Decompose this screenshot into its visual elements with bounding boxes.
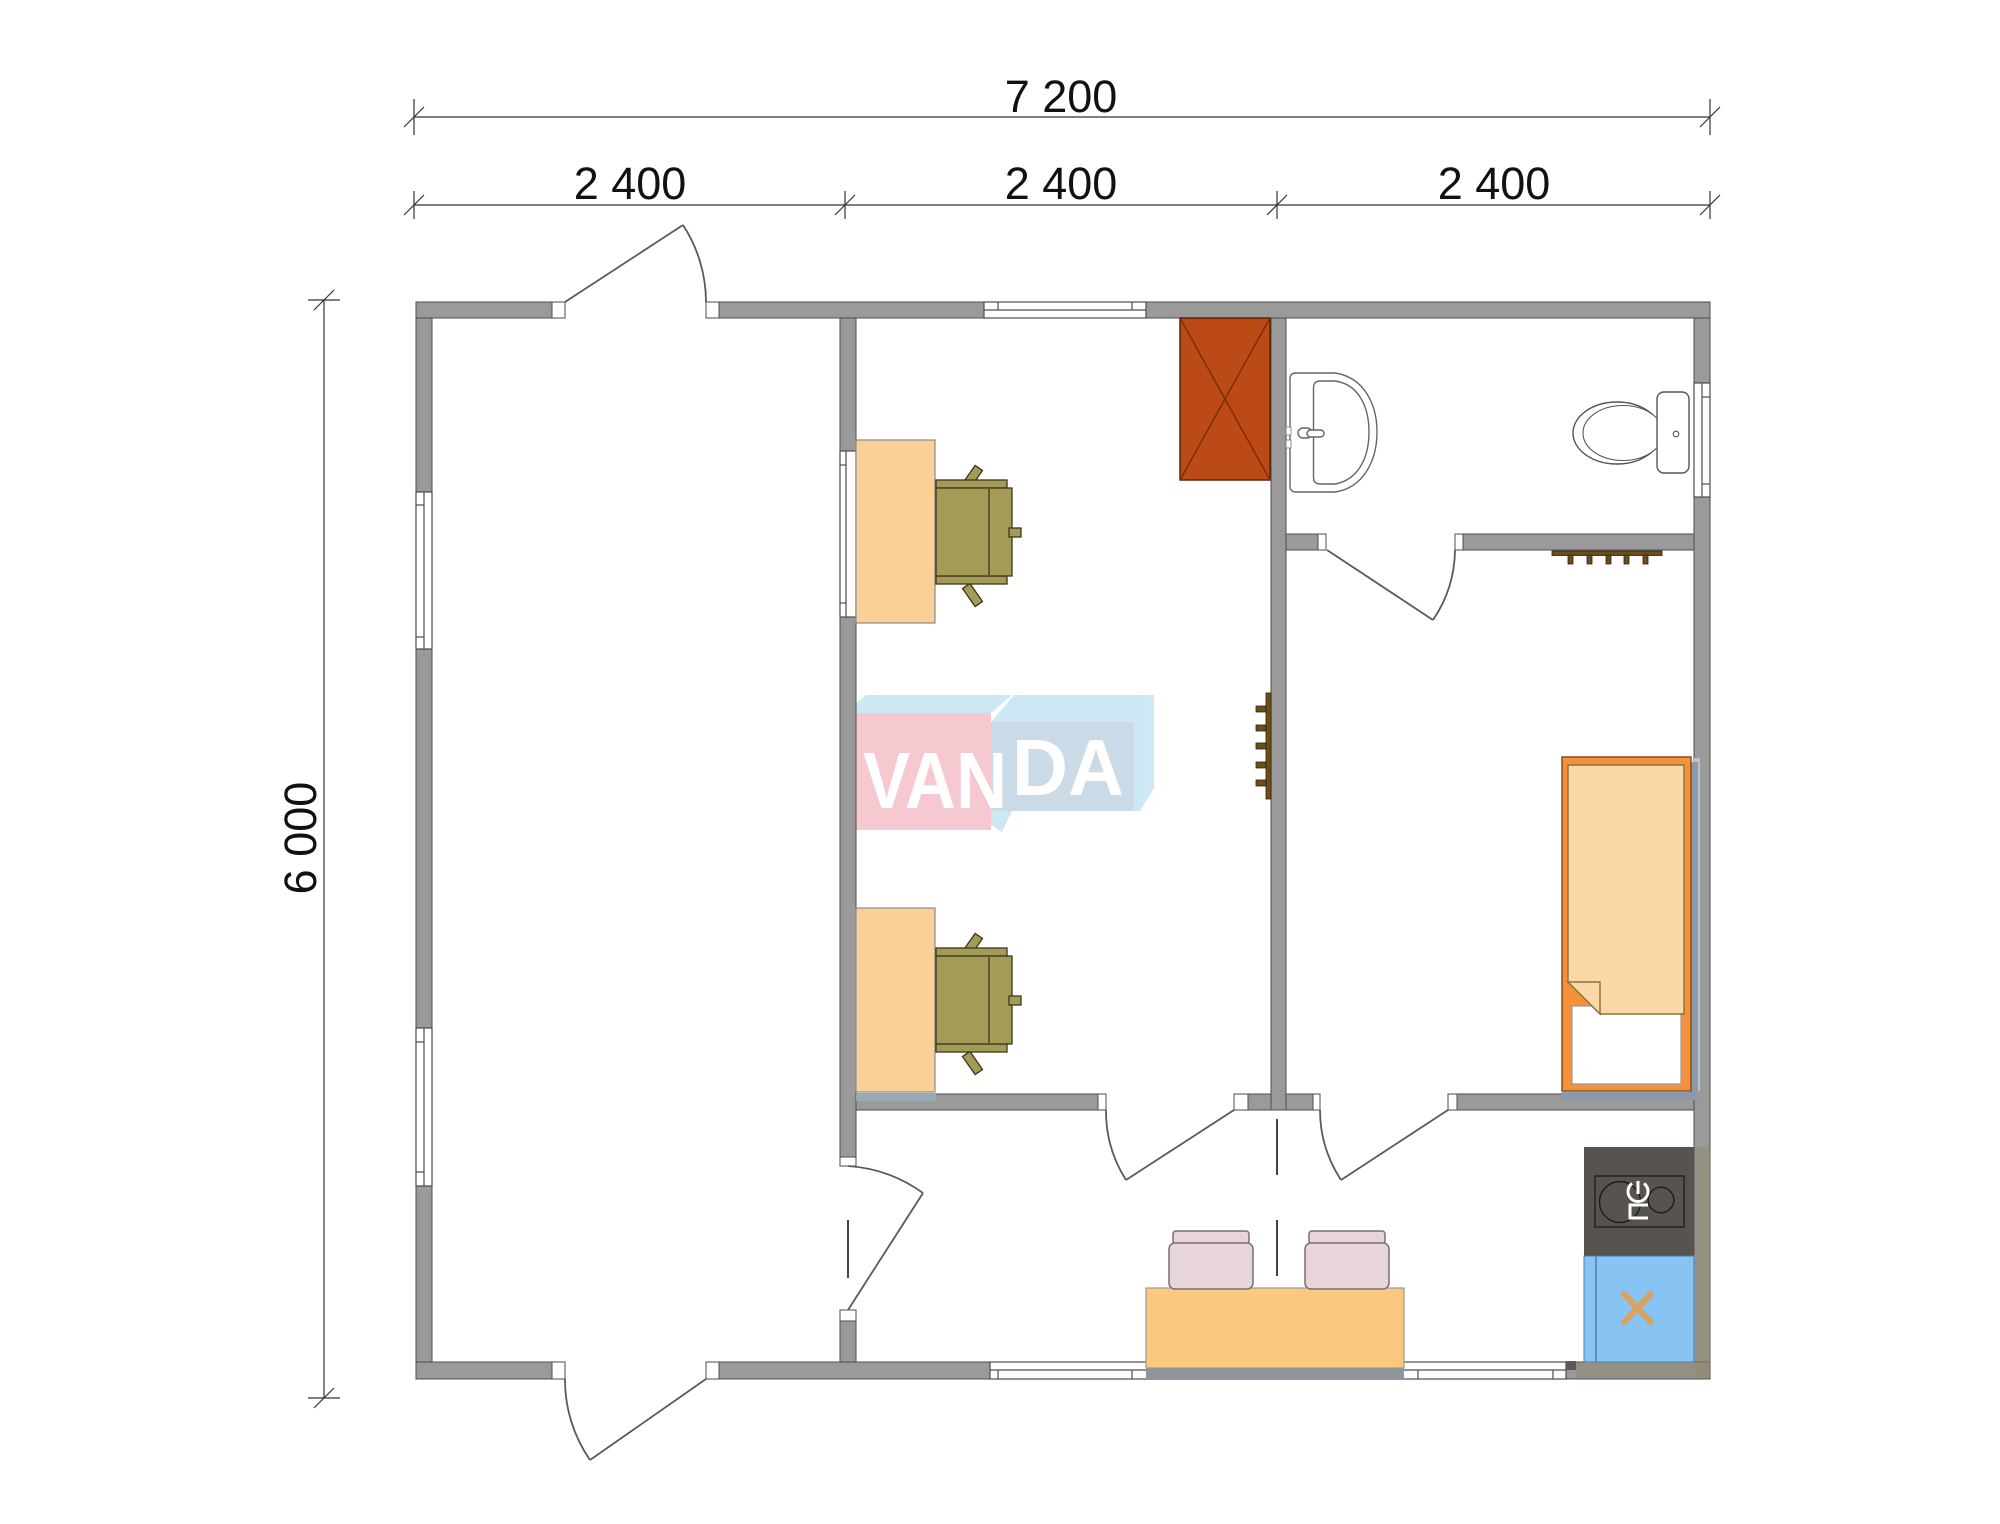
svg-text:2 400: 2 400 bbox=[574, 158, 687, 209]
svg-text:6 000: 6 000 bbox=[275, 782, 326, 895]
svg-text:2 400: 2 400 bbox=[1438, 158, 1551, 209]
svg-text:2 400: 2 400 bbox=[1005, 158, 1118, 209]
svg-text:7 200: 7 200 bbox=[1005, 71, 1118, 122]
svg-text:DA: DA bbox=[1012, 723, 1124, 812]
svg-text:VAN: VAN bbox=[863, 736, 1007, 825]
